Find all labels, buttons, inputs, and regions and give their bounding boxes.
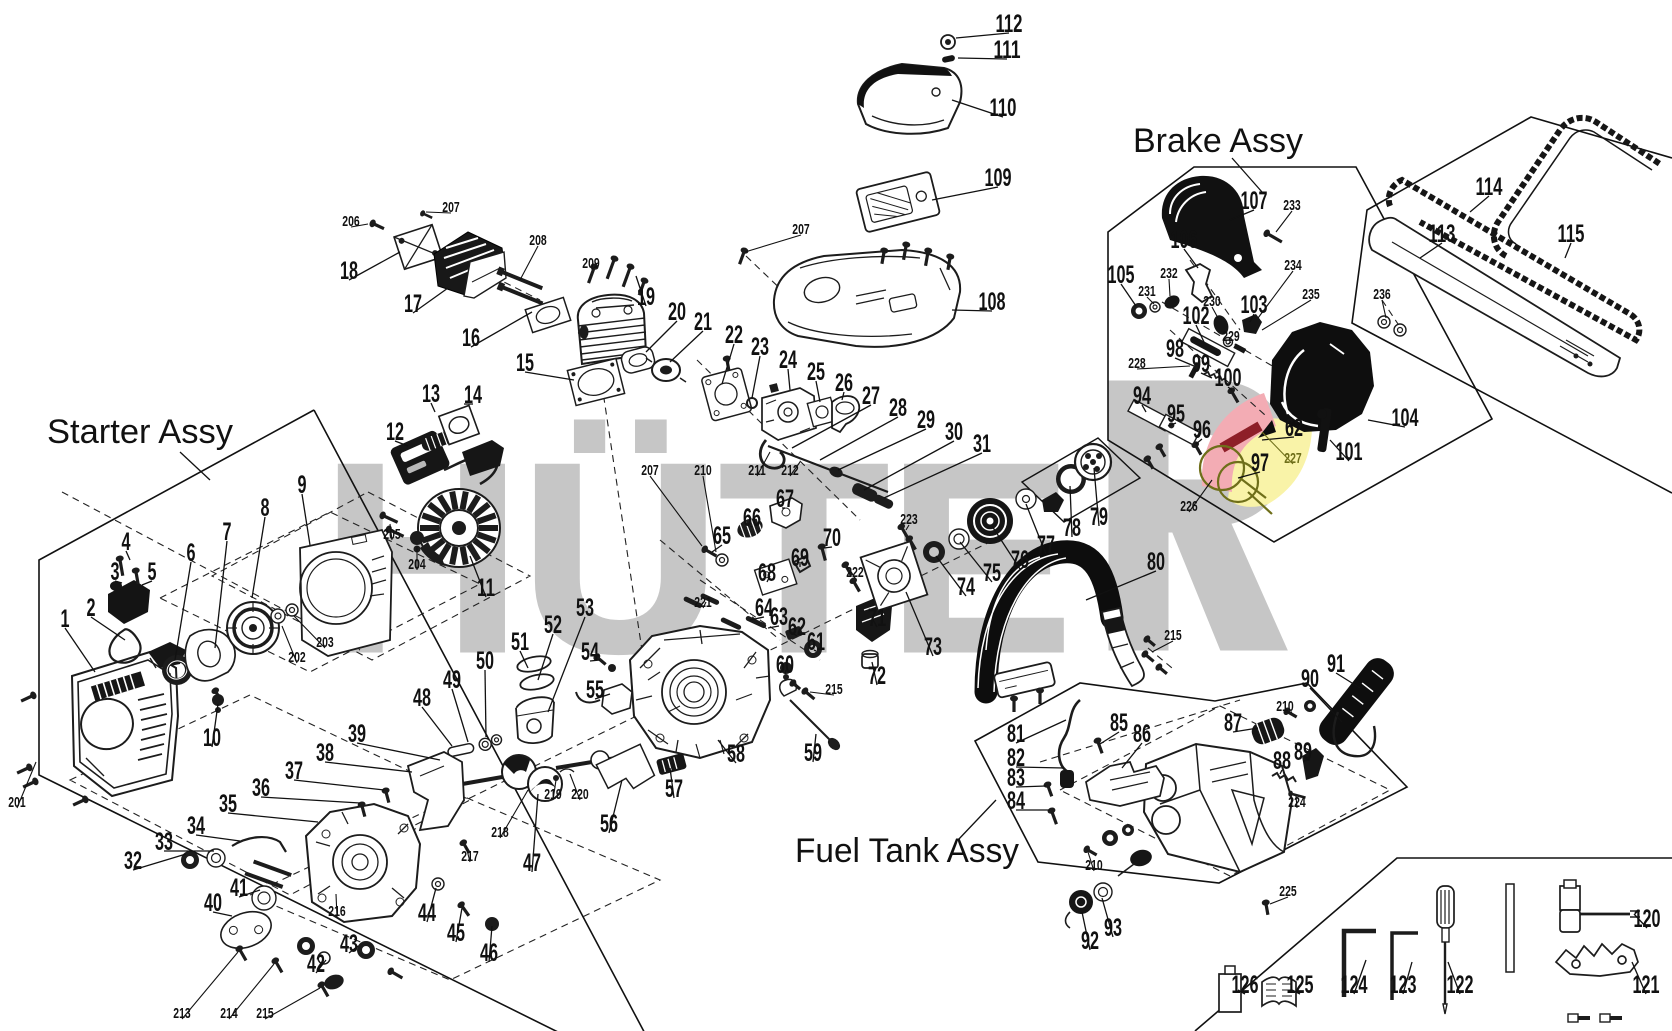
- svg-text:230: 230: [1203, 293, 1220, 310]
- svg-text:97: 97: [1251, 449, 1269, 477]
- svg-text:40: 40: [204, 889, 222, 917]
- svg-text:91: 91: [1327, 650, 1345, 678]
- svg-text:27: 27: [862, 382, 880, 410]
- svg-text:100: 100: [1215, 364, 1242, 392]
- svg-text:13: 13: [422, 380, 440, 408]
- svg-text:71: 71: [868, 604, 886, 632]
- svg-text:26: 26: [835, 369, 853, 397]
- svg-text:74: 74: [957, 573, 975, 601]
- svg-text:75: 75: [983, 559, 1001, 587]
- svg-text:58: 58: [727, 740, 745, 768]
- svg-text:62: 62: [788, 613, 806, 641]
- svg-text:22: 22: [725, 321, 743, 349]
- svg-text:28: 28: [889, 394, 907, 422]
- svg-text:19: 19: [637, 283, 655, 311]
- svg-text:87: 87: [1224, 709, 1242, 737]
- svg-text:79: 79: [1090, 503, 1108, 531]
- svg-text:4: 4: [122, 528, 131, 556]
- svg-text:8: 8: [261, 494, 270, 522]
- svg-text:7: 7: [223, 518, 232, 546]
- svg-text:37: 37: [285, 757, 303, 785]
- svg-text:96: 96: [1193, 416, 1211, 444]
- svg-text:204: 204: [408, 556, 426, 573]
- svg-text:23: 23: [751, 333, 769, 361]
- svg-text:50: 50: [476, 647, 494, 675]
- svg-text:227: 227: [1284, 450, 1301, 467]
- svg-text:42: 42: [307, 950, 325, 978]
- svg-text:233: 233: [1283, 197, 1300, 214]
- svg-text:16: 16: [462, 324, 480, 352]
- svg-text:202: 202: [288, 649, 305, 666]
- svg-text:101: 101: [1336, 438, 1363, 466]
- svg-text:223: 223: [900, 511, 917, 528]
- svg-text:25: 25: [807, 358, 825, 386]
- svg-text:105: 105: [1108, 261, 1135, 289]
- svg-text:69: 69: [791, 544, 809, 572]
- svg-text:228: 228: [1128, 355, 1145, 372]
- svg-text:210: 210: [1085, 857, 1102, 874]
- svg-text:93: 93: [1104, 914, 1122, 942]
- svg-text:235: 235: [1302, 286, 1319, 303]
- svg-text:203: 203: [316, 634, 333, 651]
- svg-text:Fuel Tank Assy: Fuel Tank Assy: [795, 832, 1019, 870]
- svg-text:3: 3: [111, 558, 120, 586]
- svg-text:218: 218: [491, 824, 508, 841]
- svg-text:210: 210: [694, 462, 711, 479]
- svg-text:66: 66: [743, 504, 761, 532]
- svg-text:80: 80: [1147, 548, 1165, 576]
- svg-text:120: 120: [1634, 905, 1661, 933]
- svg-text:39: 39: [348, 720, 366, 748]
- svg-text:229: 229: [1222, 328, 1239, 345]
- svg-text:207: 207: [641, 462, 658, 479]
- svg-text:38: 38: [316, 739, 334, 767]
- svg-text:104: 104: [1392, 404, 1419, 432]
- svg-text:107: 107: [1241, 187, 1268, 215]
- svg-text:213: 213: [173, 1005, 190, 1022]
- svg-text:14: 14: [464, 381, 482, 409]
- svg-text:205: 205: [383, 526, 400, 543]
- svg-text:24: 24: [779, 346, 797, 374]
- svg-text:212: 212: [781, 462, 798, 479]
- svg-text:61: 61: [807, 628, 825, 656]
- svg-text:226: 226: [1180, 498, 1197, 515]
- svg-text:1: 1: [61, 605, 70, 633]
- svg-text:126: 126: [1232, 971, 1259, 999]
- svg-text:123: 123: [1390, 971, 1417, 999]
- svg-text:221: 221: [694, 594, 711, 611]
- svg-text:92: 92: [1081, 927, 1099, 955]
- svg-text:5: 5: [148, 558, 157, 586]
- svg-text:111: 111: [994, 36, 1021, 64]
- svg-text:76: 76: [1011, 546, 1029, 574]
- svg-text:65: 65: [713, 522, 731, 550]
- svg-text:53: 53: [576, 594, 594, 622]
- svg-text:47: 47: [523, 849, 541, 877]
- svg-text:125: 125: [1287, 971, 1314, 999]
- svg-text:45: 45: [447, 919, 465, 947]
- svg-text:44: 44: [418, 899, 436, 927]
- svg-text:215: 215: [256, 1005, 273, 1022]
- svg-text:106: 106: [1171, 226, 1198, 254]
- svg-text:2: 2: [87, 594, 96, 622]
- svg-text:219: 219: [544, 786, 561, 803]
- svg-text:78: 78: [1063, 514, 1081, 542]
- svg-text:122: 122: [1447, 971, 1474, 999]
- svg-text:216: 216: [328, 903, 345, 920]
- svg-text:236: 236: [1373, 286, 1390, 303]
- svg-text:18: 18: [340, 257, 358, 285]
- svg-text:46: 46: [480, 939, 498, 967]
- svg-text:210: 210: [1276, 698, 1293, 715]
- svg-text:36: 36: [252, 774, 270, 802]
- svg-text:90: 90: [1301, 665, 1319, 693]
- svg-text:89: 89: [1294, 738, 1312, 766]
- svg-text:57: 57: [665, 775, 683, 803]
- svg-text:12: 12: [386, 418, 404, 446]
- svg-text:103: 103: [1241, 291, 1268, 319]
- svg-text:56: 56: [600, 810, 618, 838]
- svg-text:67: 67: [776, 485, 794, 513]
- svg-text:31: 31: [973, 430, 991, 458]
- svg-text:225: 225: [1279, 883, 1296, 900]
- svg-text:207: 207: [792, 221, 809, 238]
- svg-text:29: 29: [917, 406, 935, 434]
- svg-text:73: 73: [924, 633, 942, 661]
- svg-text:41: 41: [230, 874, 248, 902]
- svg-text:214: 214: [220, 1005, 238, 1022]
- svg-text:35: 35: [219, 790, 237, 818]
- svg-text:84: 84: [1007, 787, 1025, 815]
- svg-text:9: 9: [298, 471, 307, 499]
- svg-text:124: 124: [1341, 971, 1368, 999]
- svg-text:110: 110: [990, 94, 1017, 122]
- svg-text:54: 54: [581, 638, 599, 666]
- svg-text:220: 220: [571, 786, 588, 803]
- svg-text:99: 99: [1192, 350, 1210, 378]
- svg-text:6: 6: [187, 539, 196, 567]
- svg-text:34: 34: [187, 812, 205, 840]
- svg-text:217: 217: [461, 848, 478, 865]
- svg-text:209: 209: [582, 255, 599, 272]
- svg-text:232: 232: [1160, 265, 1177, 282]
- svg-text:33: 33: [155, 828, 173, 856]
- svg-text:86: 86: [1133, 720, 1151, 748]
- svg-text:215: 215: [825, 681, 842, 698]
- svg-text:85: 85: [1110, 709, 1128, 737]
- svg-text:59: 59: [804, 739, 822, 767]
- svg-text:64: 64: [755, 594, 773, 622]
- svg-text:72: 72: [868, 662, 886, 690]
- svg-text:49: 49: [443, 666, 461, 694]
- svg-text:108: 108: [979, 288, 1006, 316]
- svg-text:95: 95: [1167, 400, 1185, 428]
- svg-text:94: 94: [1133, 382, 1151, 410]
- svg-text:215: 215: [1164, 627, 1181, 644]
- svg-text:21: 21: [694, 308, 712, 336]
- svg-text:115: 115: [1558, 220, 1585, 248]
- svg-text:109: 109: [985, 164, 1012, 192]
- svg-text:208: 208: [529, 232, 546, 249]
- svg-text:60: 60: [776, 651, 794, 679]
- svg-text:211: 211: [748, 462, 765, 479]
- svg-text:222: 222: [846, 564, 863, 581]
- svg-text:113: 113: [1429, 220, 1456, 248]
- svg-text:20: 20: [668, 298, 686, 326]
- svg-text:207: 207: [442, 199, 459, 216]
- svg-text:55: 55: [586, 676, 604, 704]
- svg-text:43: 43: [340, 930, 358, 958]
- svg-text:234: 234: [1284, 257, 1302, 274]
- svg-text:121: 121: [1633, 971, 1660, 999]
- svg-text:77: 77: [1037, 531, 1055, 559]
- svg-text:70: 70: [823, 524, 841, 552]
- svg-text:206: 206: [342, 213, 359, 230]
- svg-text:88: 88: [1273, 747, 1291, 775]
- svg-text:52: 52: [544, 611, 562, 639]
- svg-text:68: 68: [758, 559, 776, 587]
- svg-text:224: 224: [1288, 794, 1306, 811]
- svg-text:15: 15: [516, 349, 534, 377]
- svg-text:Starter Assy: Starter Assy: [47, 413, 233, 451]
- svg-text:62: 62: [1285, 414, 1303, 442]
- svg-text:32: 32: [124, 847, 142, 875]
- svg-text:30: 30: [945, 418, 963, 446]
- svg-text:98: 98: [1166, 335, 1184, 363]
- svg-text:201: 201: [8, 794, 25, 811]
- svg-text:10: 10: [203, 724, 221, 752]
- svg-text:11: 11: [477, 574, 495, 602]
- svg-text:112: 112: [996, 10, 1023, 38]
- svg-text:48: 48: [413, 684, 431, 712]
- svg-text:114: 114: [1476, 173, 1503, 201]
- svg-text:231: 231: [1138, 283, 1155, 300]
- svg-text:17: 17: [404, 290, 422, 318]
- svg-text:Brake Assy: Brake Assy: [1133, 122, 1303, 160]
- svg-text:51: 51: [511, 628, 529, 656]
